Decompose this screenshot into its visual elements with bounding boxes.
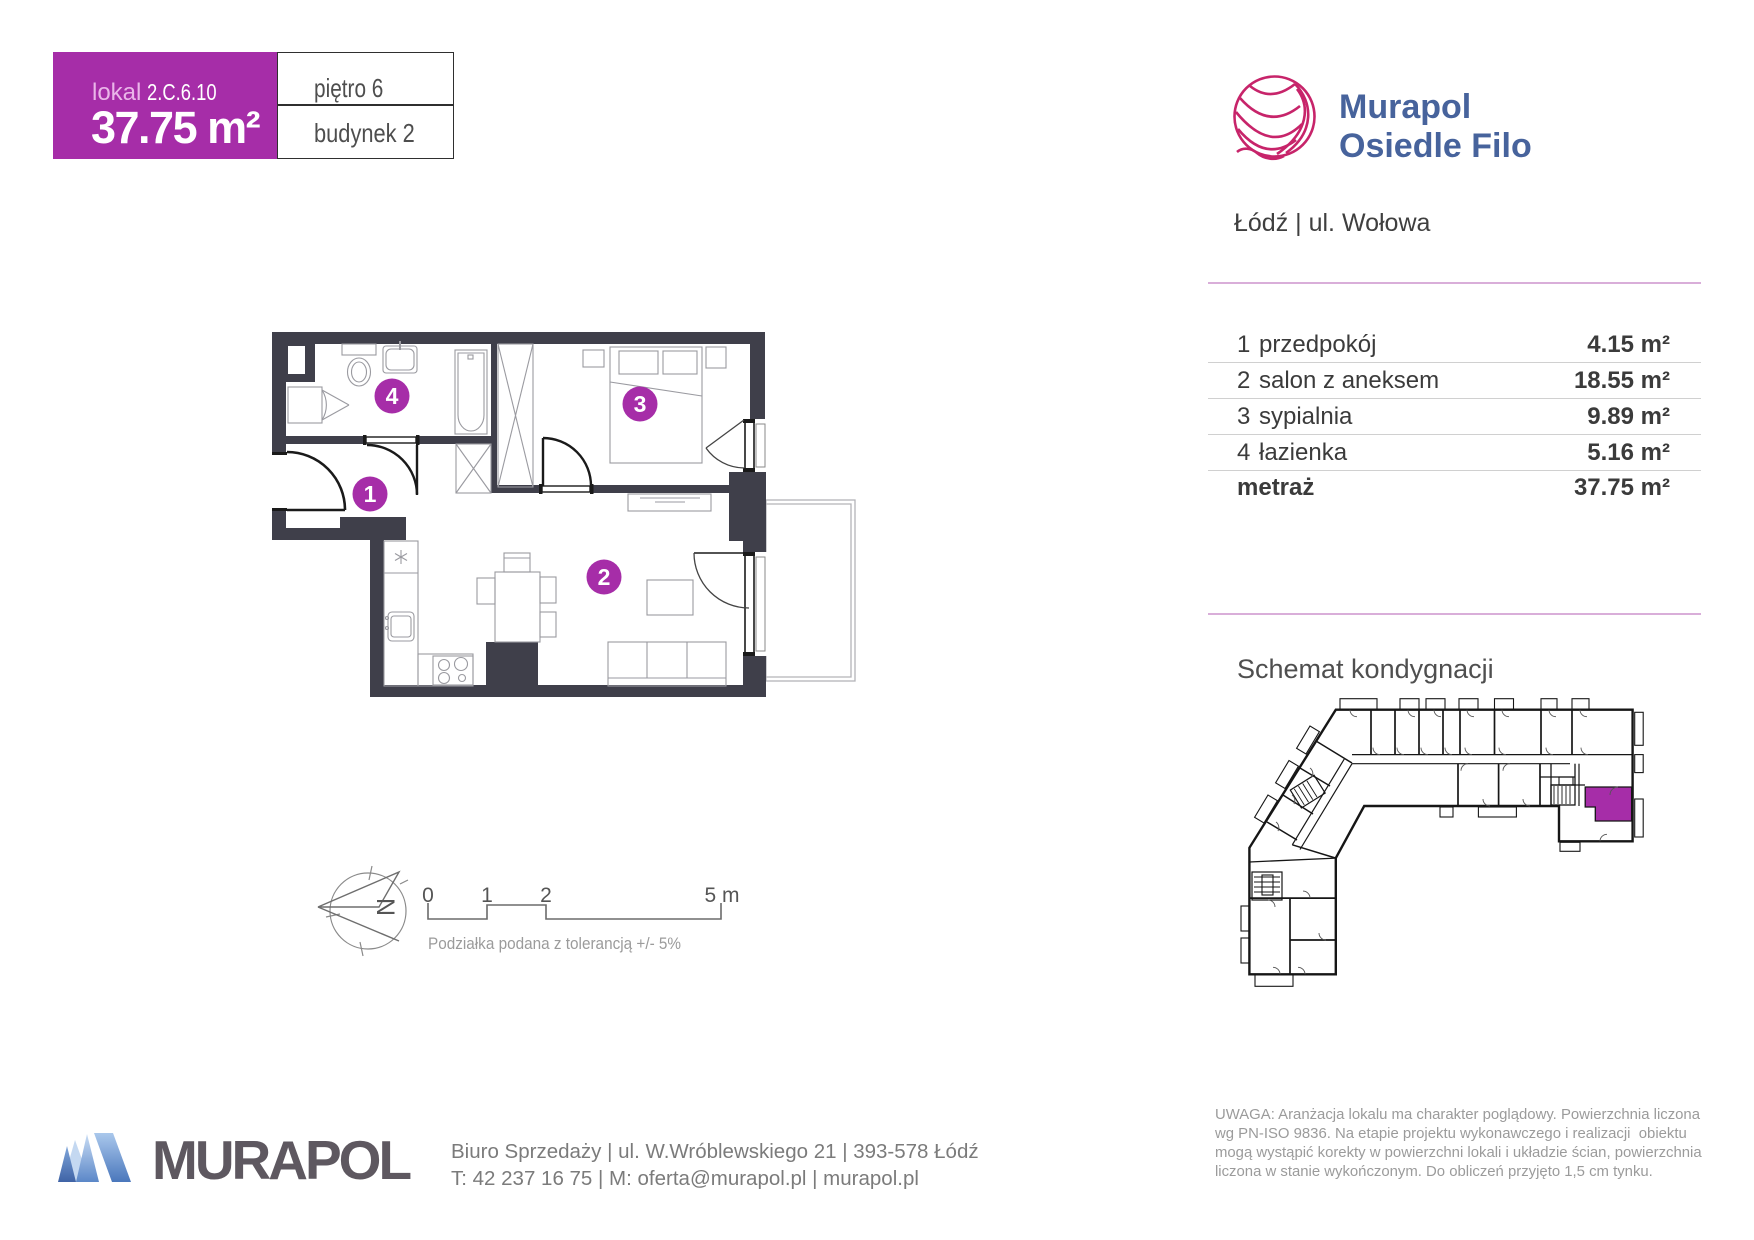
svg-text:2: 2 bbox=[598, 564, 611, 590]
svg-text:0: 0 bbox=[422, 884, 434, 907]
svg-text:N: N bbox=[373, 898, 401, 916]
svg-text:2: 2 bbox=[540, 884, 552, 907]
svg-text:4: 4 bbox=[386, 383, 399, 409]
svg-text:1: 1 bbox=[481, 884, 493, 907]
svg-text:1: 1 bbox=[364, 481, 377, 507]
svg-text:3: 3 bbox=[634, 391, 647, 417]
svg-text:5 m: 5 m bbox=[704, 884, 739, 907]
